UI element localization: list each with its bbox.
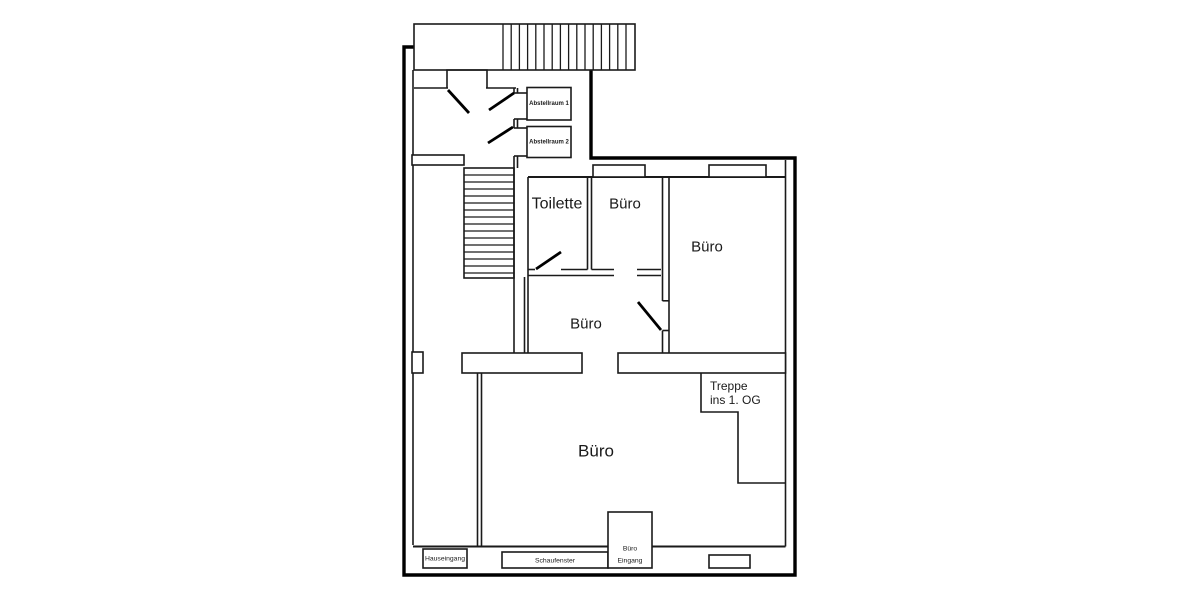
room-label-buero-right: Büro <box>691 239 723 256</box>
floorplan-canvas: Abstellraum 1 Abstellraum 2 Toilette Bür… <box>0 0 1200 600</box>
buero-eingang-label-2: Eingang <box>618 558 643 565</box>
outer-wall <box>404 47 795 575</box>
entry-vestibule <box>447 70 487 88</box>
schaufenster-label: Schaufenster <box>535 558 576 565</box>
internal-staircase <box>464 168 514 278</box>
room-buero-small: Büro <box>528 165 661 276</box>
external-stairs-hatch <box>503 24 626 70</box>
door-swing-vestibule <box>448 90 469 113</box>
staircase-outline <box>464 168 514 278</box>
room-label-abstellraum-1: Abstellraum 1 <box>529 101 569 107</box>
room-label-toilette: Toilette <box>532 196 583 213</box>
door-swing-storage1 <box>489 93 514 110</box>
wall-bars <box>462 353 786 373</box>
room-label-buero-small: Büro <box>609 196 641 213</box>
room-toilette: Toilette <box>528 177 592 270</box>
door-swing-toilette <box>536 252 561 269</box>
buero-eingang-label-1: Büro <box>623 546 638 553</box>
room-label-buero-main: Büro <box>578 442 614 461</box>
room-label-treppe-1: Treppe <box>710 379 748 393</box>
corridor <box>412 352 423 373</box>
room-label-buero-middle: Büro <box>570 316 602 333</box>
staircase-upper: Treppe ins 1. OG <box>701 373 786 483</box>
window-bay <box>593 165 645 177</box>
door-swing-storage2 <box>488 127 513 143</box>
entrance-markers: Hauseingang Schaufenster Büro Eingang <box>423 512 750 568</box>
wall-bar-left <box>462 353 582 373</box>
wall-pillar <box>412 352 423 373</box>
window-box <box>709 555 750 568</box>
wall-bar-right <box>618 353 786 373</box>
door-swing-buero <box>638 302 661 330</box>
room-label-treppe-2: ins 1. OG <box>710 393 761 407</box>
storage-area: Abstellraum 1 Abstellraum 2 <box>412 70 571 545</box>
room-label-abstellraum-2: Abstellraum 2 <box>529 140 569 146</box>
staircase-treads <box>464 175 514 273</box>
floorplan-svg: Abstellraum 1 Abstellraum 2 Toilette Bür… <box>0 0 1200 600</box>
hauseingang-label: Hauseingang <box>425 556 465 563</box>
divider-middle-right <box>638 177 669 353</box>
wall-stub <box>412 155 464 165</box>
external-stairs <box>414 24 635 88</box>
window-bay <box>709 165 766 177</box>
